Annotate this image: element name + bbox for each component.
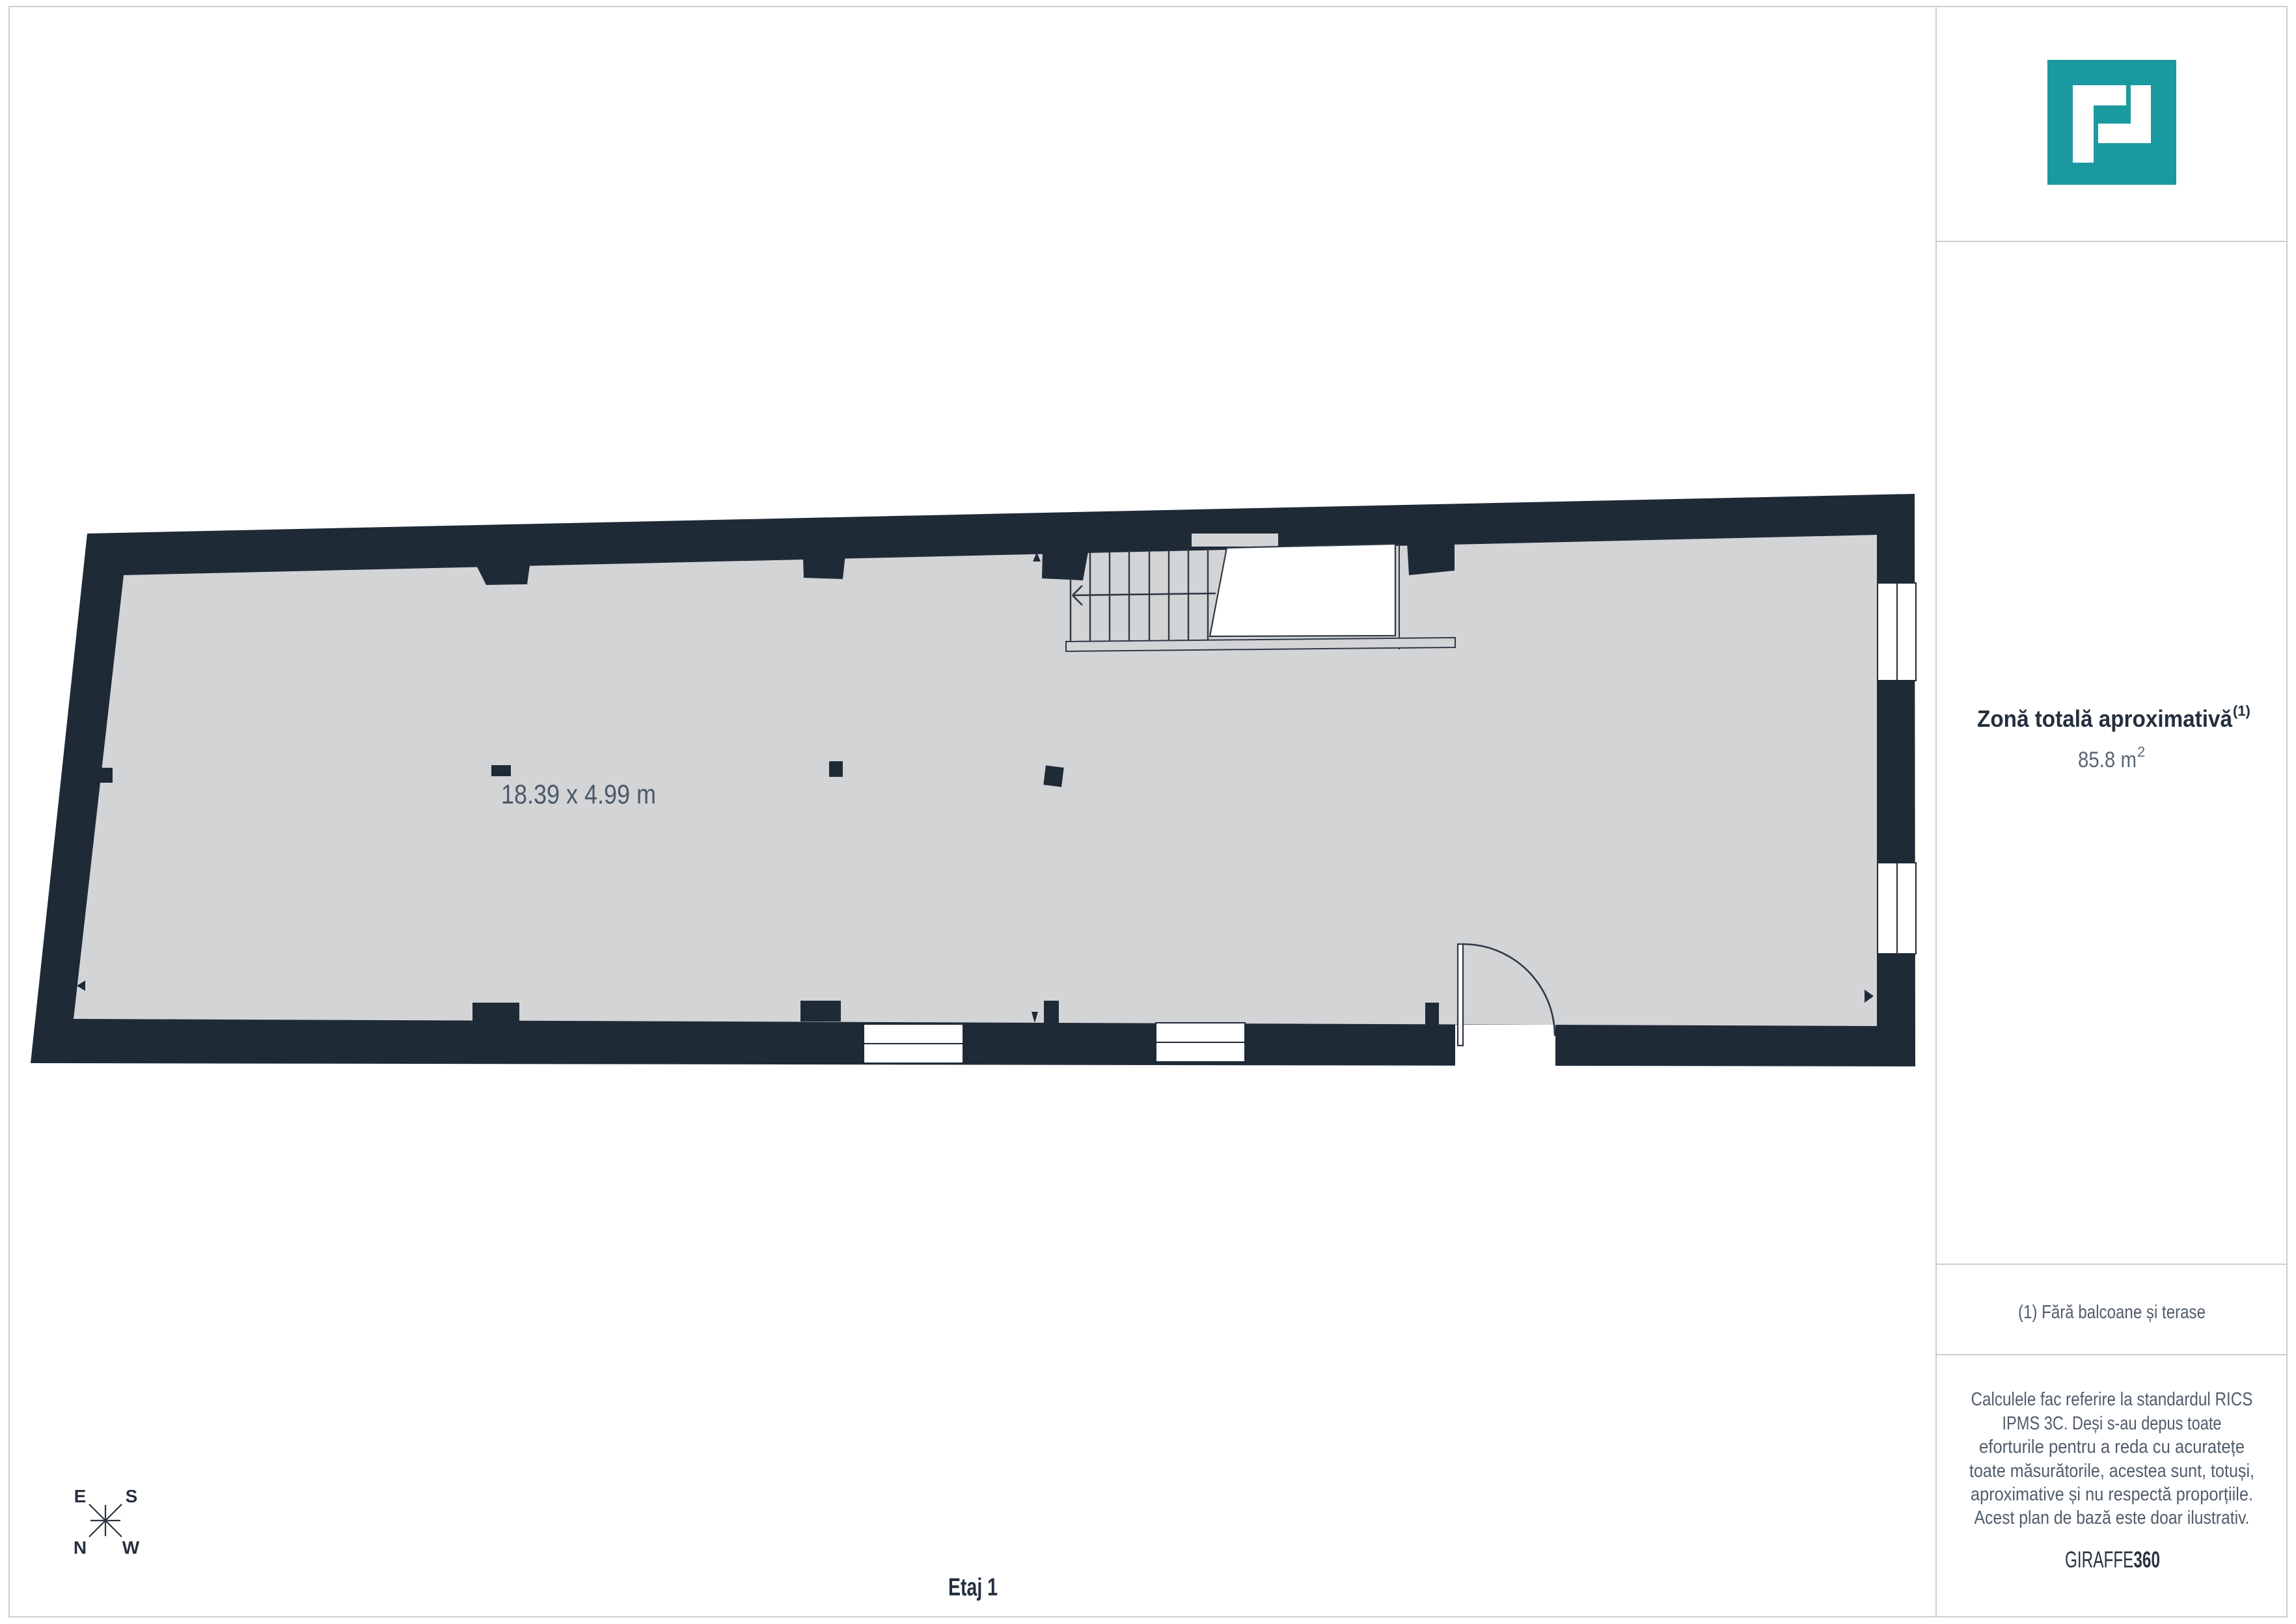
svg-text:85.8 m: 85.8 m <box>2078 748 2137 772</box>
svg-text:S: S <box>126 1486 138 1506</box>
svg-text:aproximative și nu respectă pr: aproximative și nu respectă proporțiile. <box>1971 1484 2253 1505</box>
svg-text:(1) Fără balcoane și terase: (1) Fără balcoane și terase <box>2018 1302 2206 1323</box>
svg-text:W: W <box>122 1537 140 1558</box>
svg-text:Etaj 1: Etaj 1 <box>948 1574 998 1601</box>
svg-text:GIRAFFE360: GIRAFFE360 <box>2065 1547 2160 1573</box>
svg-text:N: N <box>74 1537 87 1558</box>
svg-text:eforturile pentru a reda cu ac: eforturile pentru a reda cu acuratețe <box>1979 1437 2245 1457</box>
svg-text:18.39 x 4.99 m: 18.39 x 4.99 m <box>501 779 656 809</box>
svg-text:toate măsurătorile, acestea su: toate măsurătorile, acestea sunt, totuși… <box>1969 1461 2254 1482</box>
svg-text:Acest plan de bază este doar i: Acest plan de bază este doar ilustrativ. <box>1975 1508 2250 1528</box>
svg-text:2: 2 <box>2137 744 2145 760</box>
svg-text:(1): (1) <box>2233 703 2250 719</box>
svg-text:E: E <box>74 1486 87 1506</box>
svg-text:Calculele fac referire la stan: Calculele fac referire la standardul RIC… <box>1971 1389 2253 1410</box>
svg-text:IPMS 3C. Deși s-au depus toate: IPMS 3C. Deși s-au depus toate <box>2002 1413 2222 1434</box>
svg-text:Zonă totală aproximativă: Zonă totală aproximativă <box>1977 705 2233 732</box>
